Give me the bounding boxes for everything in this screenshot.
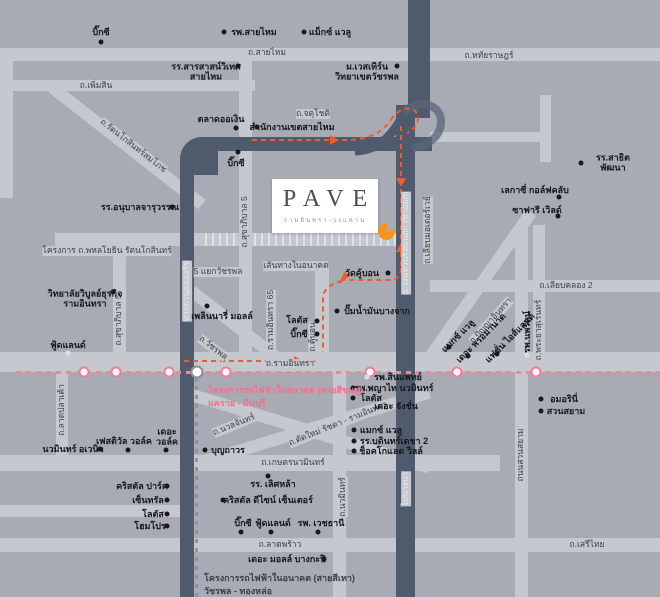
poi-label: ซาฟารี เวิลด์ bbox=[512, 205, 561, 215]
poi-marker-dot bbox=[395, 64, 400, 69]
poi-marker-dot bbox=[66, 351, 71, 356]
poi-marker-dot bbox=[322, 557, 327, 562]
pink-line-station bbox=[531, 367, 542, 378]
road-label: โครงการ ถ.พหลโยธิน รัตนโกสินทร์ bbox=[42, 246, 171, 256]
poi-label: ม.เวสเทิร์น วิทยาเขตวัชรพล bbox=[335, 62, 399, 83]
future-road-hatch bbox=[205, 233, 398, 246]
poi-marker-dot bbox=[352, 449, 357, 454]
poi-label: บิ๊กซี bbox=[290, 329, 307, 339]
poi-label: ฟู้ดแลนด์ bbox=[50, 340, 86, 350]
poi-marker-dot bbox=[170, 205, 175, 210]
poi-label: แมกซ์ แวลู bbox=[360, 425, 402, 435]
poi-marker-dot bbox=[234, 126, 239, 131]
project-subtitle: รามอินทรา-วงแหวน bbox=[284, 215, 366, 225]
poi-marker-dot bbox=[111, 290, 116, 295]
road-label: ถ.รัตนโกสินทร์สมโภช bbox=[98, 117, 168, 175]
poi-label: อมอรินี่ bbox=[550, 394, 578, 404]
road-label: ไปบางนา bbox=[401, 472, 411, 507]
poi-label: นวมินทร์ อเวนิว bbox=[42, 444, 103, 454]
poi-marker-dot bbox=[495, 352, 500, 357]
poi-label: รพ. เวชธานี bbox=[298, 518, 345, 528]
poi-marker-dot bbox=[236, 64, 241, 69]
pink-line-station bbox=[164, 367, 175, 378]
poi-label: รพ.สินแพทย์ bbox=[374, 372, 422, 382]
poi-marker-dot bbox=[203, 448, 208, 453]
poi-marker-dot bbox=[221, 498, 226, 503]
road-label: ถ.นวลจันทร์ bbox=[212, 412, 257, 438]
poi-marker-dot bbox=[335, 309, 340, 314]
poi-marker-dot bbox=[316, 530, 321, 535]
poi-label: รพ.สายไหม bbox=[231, 27, 276, 37]
grey-line-monorail bbox=[195, 377, 198, 597]
poi-label: เดอะ มอลล์ บางกะปิ bbox=[248, 554, 326, 564]
road-label: ถ.เกษตรนวมินทร์ bbox=[261, 458, 324, 468]
poi-marker-dot bbox=[386, 271, 391, 276]
poi-label: โฮมโปร bbox=[134, 521, 166, 531]
road-label: ถ.วงแหวนรอบนอก (ขาออก) bbox=[401, 191, 411, 294]
poi-marker-dot bbox=[352, 428, 357, 433]
poi-marker-dot bbox=[352, 439, 357, 444]
road-saimai bbox=[0, 48, 660, 61]
road-label: ถ.สายไหม bbox=[248, 48, 286, 58]
road-label: ถ.คู้บอน bbox=[308, 322, 318, 352]
poi-label: รร.อนุบาลจารุวรรณ bbox=[101, 202, 179, 212]
road-label: ถ.รามอินทรา bbox=[266, 359, 314, 369]
poi-label: บิ๊กซี bbox=[227, 158, 244, 168]
poi-marker-dot bbox=[556, 214, 561, 219]
road-suan-siam bbox=[515, 225, 528, 597]
poi-label: รร. เลิศหล้า bbox=[250, 479, 295, 489]
poi-marker-dot bbox=[255, 125, 260, 130]
road-label: ถ.สุขาภิบาล 5 bbox=[240, 196, 250, 247]
road-ladprao-serithai bbox=[0, 538, 660, 552]
project-brand: PAVE bbox=[283, 187, 376, 211]
poi-label: รพ.นพรัตน์ bbox=[522, 311, 532, 353]
road-label: ถ.จตุโชติ bbox=[296, 109, 330, 119]
poi-marker-dot bbox=[266, 474, 271, 479]
chalong-rat-expressway bbox=[180, 168, 194, 597]
poi-label: คริสตัล ปาร์ค bbox=[116, 481, 168, 491]
pink-line-label: โครงการรถไฟฟ้าในอนาคต (สายสีชมพู) bbox=[208, 385, 363, 395]
location-map: ถ.สายไหมถ.หทัยราษฎร์ถ.เพิ่มสินถ.จตุโชติถ… bbox=[0, 0, 660, 597]
poi-label: เซ็นทรัล bbox=[132, 495, 164, 505]
poi-marker-dot bbox=[466, 354, 471, 359]
ring-road-top bbox=[408, 0, 430, 118]
road-label: ถ.หทัยราษฎร์ bbox=[465, 51, 514, 61]
road-label: ถ.เลียบคลอง 2 bbox=[539, 281, 592, 291]
road-stub-ne bbox=[430, 132, 548, 142]
poi-marker-dot bbox=[239, 530, 244, 535]
project-location-marker bbox=[378, 223, 395, 240]
poi-marker-dot bbox=[302, 30, 307, 35]
poi-marker-dot bbox=[99, 40, 104, 45]
pink-line-station bbox=[221, 367, 232, 378]
poi-label: สำนักงานเขตสายไหม bbox=[249, 122, 334, 132]
road-satit-pattana bbox=[540, 95, 551, 162]
poi-label: เพลินนารี่ มอลล์ bbox=[191, 311, 253, 321]
poi-label: โลตัส bbox=[142, 509, 164, 519]
poi-label: บิ๊กซี bbox=[234, 518, 251, 528]
road-label: ถนนสวนสยาม bbox=[516, 428, 526, 481]
poi-label: เดอะ จังชั่น bbox=[374, 401, 418, 411]
poi-marker-dot bbox=[579, 161, 584, 166]
road-label: ถ.นวมินทร์ bbox=[338, 477, 348, 517]
road-label: ถ.ลาดปลาเค้า bbox=[57, 384, 67, 436]
poi-label: สวนสยาม bbox=[547, 406, 585, 416]
poi-marker-dot bbox=[165, 512, 170, 517]
poi-marker-dot bbox=[365, 375, 370, 380]
poi-label: รร.สาธิตพัฒนา bbox=[590, 153, 637, 174]
poi-marker-dot bbox=[126, 448, 131, 453]
grey-line-label: โครงการรถไฟฟ้าในอนาคต (สายสีเทา) bbox=[204, 573, 355, 583]
poi-label: คริสตัล ดีไซน์ เซ็นเตอร์ bbox=[223, 495, 313, 505]
poi-marker-dot bbox=[315, 332, 320, 337]
poi-marker-dot bbox=[539, 409, 544, 414]
poi-marker-dot bbox=[351, 396, 356, 401]
poi-label: รพ.พญาไท นวมินทร์ bbox=[355, 383, 434, 393]
pink-line-route-label: แคราย - มีนบุรี bbox=[208, 398, 266, 408]
poi-label: บุญถาวร bbox=[211, 445, 245, 455]
ring-road-main bbox=[396, 105, 415, 597]
poi-marker-dot bbox=[222, 30, 227, 35]
road-label: ถ.ลาดพร้าว bbox=[259, 540, 302, 550]
poi-label: ตลาดออเงิน bbox=[198, 114, 245, 124]
road-label: ถ.เพิ่มสิน bbox=[80, 81, 113, 91]
poi-label: ฟู้ดแลนด์ bbox=[255, 518, 291, 528]
road-label: ถ.พระยาสุเรนทร์ bbox=[534, 300, 544, 361]
poi-marker-dot bbox=[165, 484, 170, 489]
poi-label: รร.สารสาสน์วิเทศ สายไหม bbox=[171, 62, 241, 83]
poi-label: เฟสติวัล วอล์ค bbox=[96, 436, 152, 446]
pink-line-station bbox=[111, 367, 122, 378]
interchange-station bbox=[191, 366, 204, 379]
poi-marker-dot bbox=[98, 447, 103, 452]
poi-label: รร.บดินทร์เดชา 2 bbox=[360, 436, 428, 446]
poi-marker-dot bbox=[557, 195, 562, 200]
poi-label: บิ๊กซี bbox=[92, 27, 109, 37]
poi-marker-dot bbox=[315, 319, 320, 324]
future-route-label: เส้นทางในอนาคต bbox=[263, 261, 328, 271]
poi-marker-dot bbox=[525, 353, 530, 358]
grey-line-route-label: วัชรพล - ทองหล่อ bbox=[204, 586, 272, 596]
poi-marker-dot bbox=[165, 498, 170, 503]
poi-marker-dot bbox=[164, 448, 169, 453]
poi-marker-dot bbox=[539, 397, 544, 402]
pink-line-station bbox=[79, 367, 90, 378]
pink-line-station bbox=[452, 367, 463, 378]
poi-label: เดอะ วอล์ค bbox=[156, 427, 178, 448]
poi-label: วัดคู้บอน bbox=[345, 268, 379, 278]
road-label: ถ.เสรีไทย bbox=[569, 540, 604, 550]
poi-marker-dot bbox=[205, 304, 210, 309]
road-left-vertical bbox=[0, 48, 13, 198]
poi-label: ช็อคโกแลต วิลล์ bbox=[359, 446, 423, 456]
road-ramintra bbox=[0, 352, 660, 372]
poi-marker-dot bbox=[236, 150, 241, 155]
road-label: 5 แยกวัชรพล bbox=[194, 267, 243, 277]
project-logo-box: PAVE รามอินทรา-วงแหวน bbox=[272, 179, 378, 233]
poi-marker-dot bbox=[269, 530, 274, 535]
poi-label: โลตัส bbox=[286, 315, 308, 325]
road-label: ถ.เลียบมอเตอร์เวย์ bbox=[423, 196, 433, 263]
poi-label: ปั๊มน้ำมันบางจาก bbox=[344, 306, 410, 316]
poi-label: แม็กซ์ แวลู bbox=[309, 27, 351, 37]
poi-marker-dot bbox=[165, 524, 170, 529]
road-label: ถ.รามอินทรา 65 bbox=[266, 290, 276, 350]
poi-marker-dot bbox=[447, 345, 452, 350]
